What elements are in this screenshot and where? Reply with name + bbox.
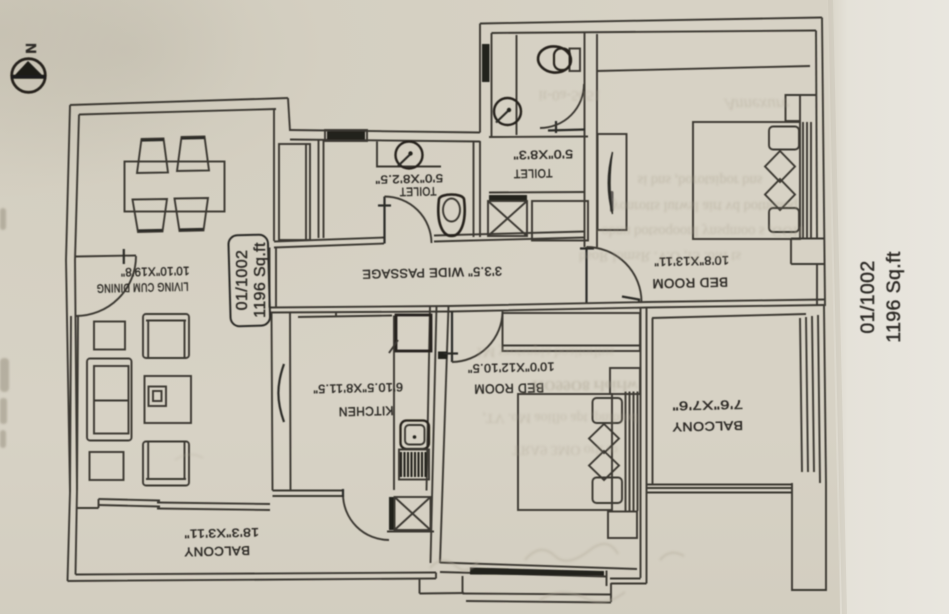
svg-text:01/1002: 01/1002 bbox=[234, 250, 251, 311]
svg-text:bsoR lomsR .V.O ,fS .oM ts: bsoR lomsR .V.O ,fS .oM ts bbox=[579, 248, 741, 264]
svg-text:5'0"X8'3": 5'0"X8'3" bbox=[513, 147, 573, 162]
svg-text:7'6"X7'6": 7'6"X7'6" bbox=[672, 397, 743, 413]
svg-text:LIVING CUM DINING: LIVING CUM DINING bbox=[96, 279, 188, 295]
svg-text:5'0"X8'2.5": 5'0"X8'2.5" bbox=[375, 171, 443, 185]
svg-text:10'10"X19'8": 10'10"X19'8" bbox=[120, 264, 189, 280]
svg-text:Annexure: Annexure bbox=[724, 95, 790, 114]
svg-text:TRA9 3MO orlt to: TRA9 3MO orlt to bbox=[512, 442, 617, 457]
svg-text:-obnu botsoqoonl ynsqmoo s ,GO: -obnu botsoqoonl ynsqmoo s ,GOH bbox=[597, 223, 804, 239]
svg-text:1196 Sq.ft: 1196 Sq.ft bbox=[883, 251, 905, 343]
svg-text:KITCHEN: KITCHEN bbox=[338, 403, 393, 418]
svg-text:1196 Sq.ft: 1196 Sq.ft bbox=[252, 242, 269, 318]
svg-text:it-0a-5051: it-0a-5051 bbox=[539, 87, 601, 103]
svg-text:BED ROOM: BED ROOM bbox=[652, 275, 728, 292]
svg-text:10'0"X12'10.5": 10'0"X12'10.5" bbox=[467, 360, 554, 376]
svg-text:BALCONY: BALCONY bbox=[672, 418, 744, 434]
svg-text:TOILET: TOILET bbox=[399, 184, 437, 199]
svg-text:N: N bbox=[22, 43, 38, 54]
svg-text:yonrotts lutwsl airt vd botnoa: yonrotts lutwsl airt vd botnoaoq bbox=[612, 198, 797, 214]
svg-text:BALCONY: BALCONY bbox=[184, 543, 251, 558]
svg-text:6'10.5"X8'11.5": 6'10.5"X8'11.5" bbox=[313, 380, 403, 396]
svg-text:si bns ,borotaipor bns: si bns ,borotaipor bns bbox=[638, 172, 763, 188]
svg-text:HO99O8 rloirlw: HO99O8 rloirlw bbox=[532, 377, 638, 393]
svg-text:,TV .oM aoiflo apt ,pniblod: ,TV .oM aoiflo apt ,pniblod bbox=[483, 410, 638, 425]
svg-text:TOILET: TOILET bbox=[513, 166, 553, 181]
svg-text:1M yrotsnpia boaitorltus: 1M yrotsnpia boaitorltus bbox=[476, 344, 614, 359]
svg-text:01/1002: 01/1002 bbox=[857, 260, 879, 333]
svg-text:18'3"X3'11": 18'3"X3'11" bbox=[184, 525, 259, 541]
